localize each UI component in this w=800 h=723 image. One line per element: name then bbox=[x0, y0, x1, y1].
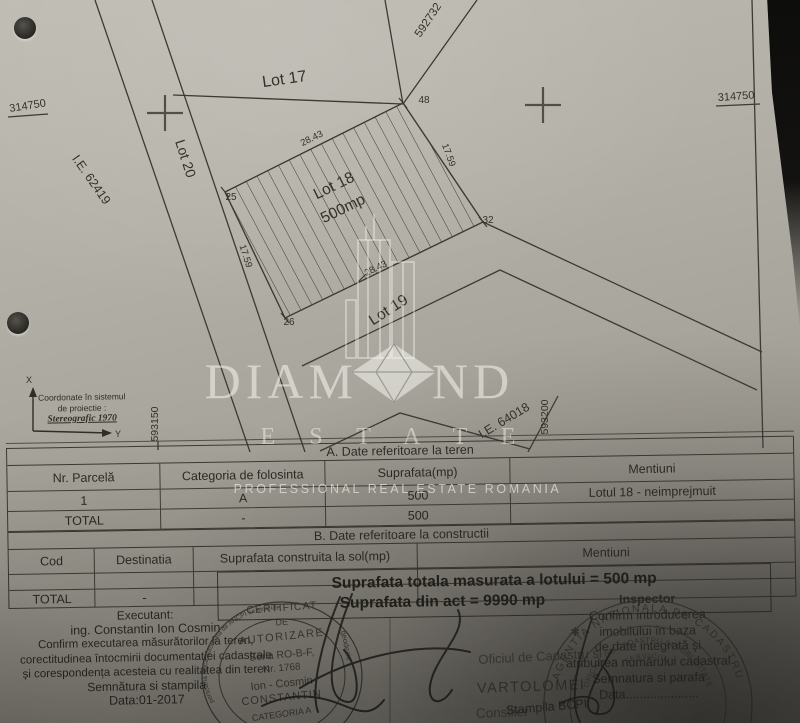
coord-label-bottom-left: 593150 bbox=[149, 406, 161, 441]
table-cell: 1 bbox=[8, 490, 162, 512]
axis-y-label: Y bbox=[115, 429, 121, 439]
col-header: Categoria de folosinta bbox=[161, 461, 326, 490]
projection-note-line3: Stereografic 1970 bbox=[38, 413, 126, 426]
scanned-cadastral-document: X Y 592732 314750 314750 593150 593200 L… bbox=[0, 0, 800, 723]
total-cell: TOTAL bbox=[8, 510, 162, 532]
col-header: Suprafata construita la sol(mp) bbox=[193, 544, 417, 573]
point-25-label: 25 bbox=[225, 192, 237, 203]
col-header: Cod bbox=[9, 549, 96, 575]
coord-label-right: 314750 bbox=[717, 89, 754, 104]
inspector-date-dots: ..................... bbox=[625, 686, 698, 701]
table-teren: A. Date referitoare la teren Nr. Parcelă… bbox=[6, 436, 795, 532]
col-header: Destinatia bbox=[95, 547, 194, 574]
point-32-label: 32 bbox=[482, 215, 494, 226]
coord-label-left: 314750 bbox=[9, 97, 47, 115]
total-cell: 500 bbox=[326, 504, 511, 527]
data-tables-section: A. Date referitoare la teren Nr. Parcelă… bbox=[6, 436, 796, 609]
cadastral-plan-drawing: X Y 592732 314750 314750 593150 593200 L… bbox=[0, 0, 800, 452]
coord-label-top: 592732 bbox=[413, 1, 444, 40]
grid-cross-marks bbox=[147, 87, 561, 131]
coord-label-bottom-right: 593200 bbox=[539, 399, 551, 434]
total-cell: - bbox=[161, 507, 326, 530]
table-cell bbox=[95, 572, 193, 590]
col-header: Nr. Parcelă bbox=[7, 464, 161, 492]
projection-note-line1: Coordonate în sistemul bbox=[38, 391, 126, 404]
parcel-left-label: I.E. 62419 bbox=[69, 152, 113, 207]
point-26-label: 26 bbox=[283, 317, 295, 328]
table-cell: A bbox=[161, 487, 326, 510]
point-48-label: 48 bbox=[418, 95, 430, 106]
projection-note: Coordonate în sistemul de proiectie : St… bbox=[38, 391, 127, 426]
inspector-date-label: Data bbox=[599, 687, 626, 701]
table-teren-grid: Nr. Parcelă Categoria de folosinta Supra… bbox=[7, 454, 794, 532]
total-cell: TOTAL bbox=[9, 590, 96, 609]
axis-x-label: X bbox=[26, 375, 32, 385]
lot17-label: Lot 17 bbox=[261, 68, 308, 91]
col-header: Suprafata(mp) bbox=[326, 458, 511, 487]
lot20-label: Lot 20 bbox=[172, 137, 199, 179]
executant-block: Executant: ing. Constantin Ion Cosmin Co… bbox=[9, 605, 283, 710]
table-cell bbox=[9, 574, 96, 591]
